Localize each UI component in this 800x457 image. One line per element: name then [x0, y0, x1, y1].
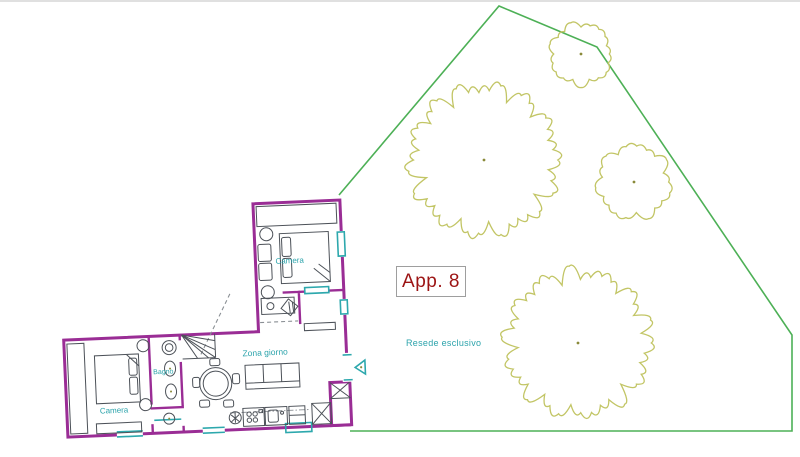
room-label-bagno: Bagno: [153, 368, 174, 376]
apartment-label: App. 8: [402, 271, 460, 293]
exterior-walls: [58, 200, 350, 437]
floorplan-drawing: Camera: [0, 2, 800, 457]
room-label-camera-lower: Camera: [100, 405, 129, 415]
garden-boundary: [339, 6, 792, 431]
tree-trunk-dot: [577, 342, 580, 345]
floorplan-page: Camera: [0, 0, 800, 457]
tree-trunk-dot: [483, 159, 486, 162]
tree-trunk-dot: [633, 181, 636, 184]
parcel-boundary-line: [339, 6, 792, 431]
tree-trunk-dot: [580, 53, 583, 56]
room-label-camera-upper: Camera: [275, 256, 304, 266]
apartment-label-box: App. 8: [396, 266, 466, 297]
corner-cabinet-block: [330, 382, 352, 426]
entrance-arrow-icon: [355, 360, 366, 374]
floor-plan: Camera: [58, 199, 368, 442]
room-label-zona-giorno: Zona giorno: [242, 346, 288, 358]
garden-trees: [405, 22, 672, 419]
garden-label: Resede esclusivo: [406, 338, 481, 348]
